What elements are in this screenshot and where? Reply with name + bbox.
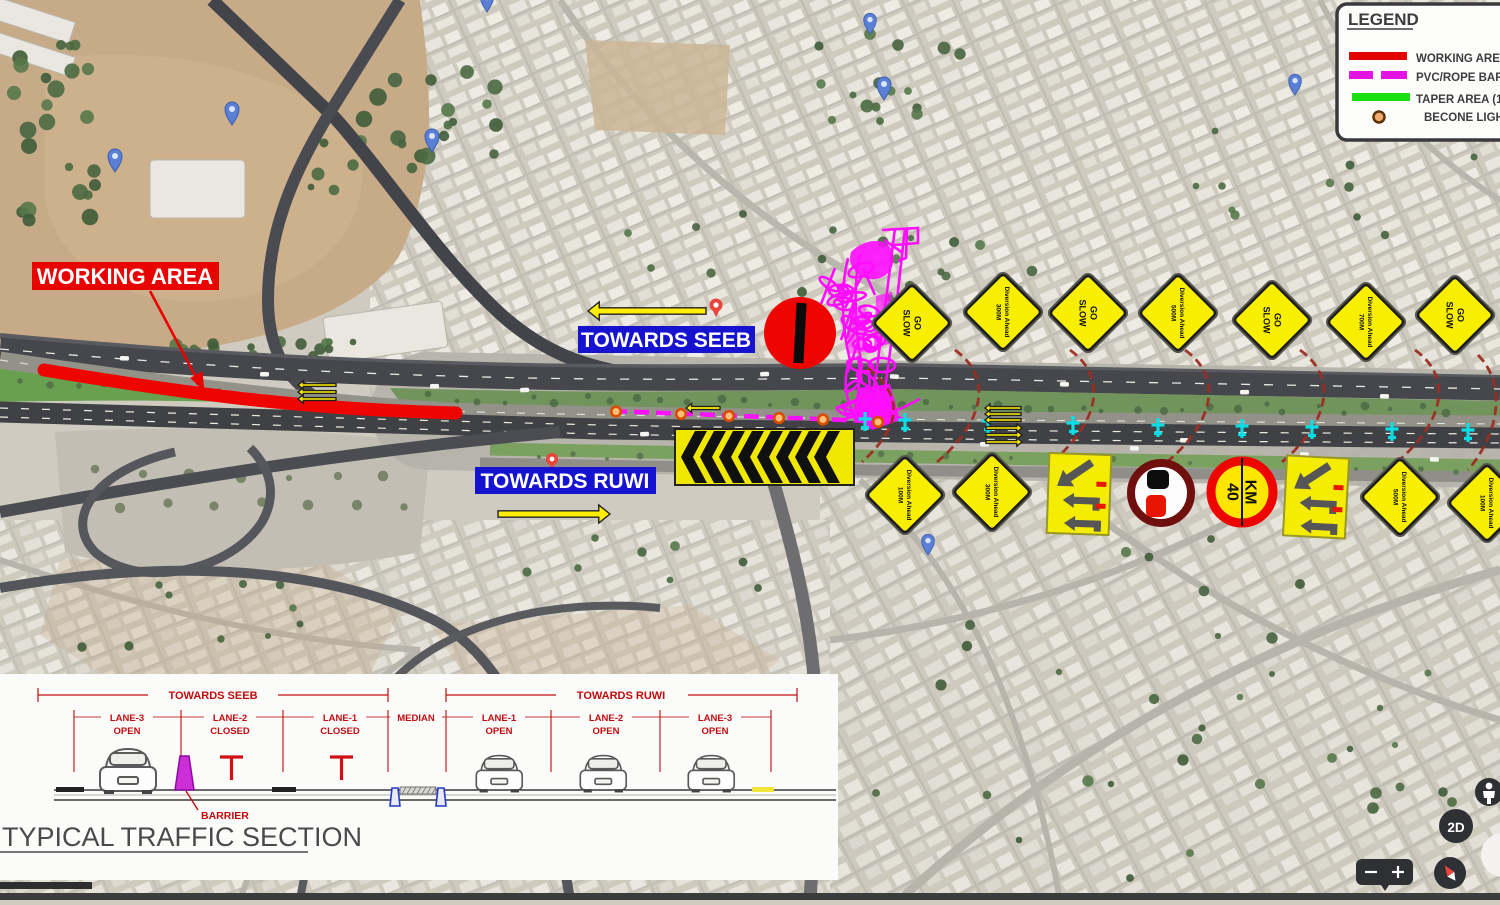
svg-text:WORKING AREA: WORKING AREA — [1416, 53, 1500, 65]
svg-text:Diversion Ahead: Diversion Ahead — [1003, 286, 1010, 337]
svg-text:Diversion Ahead: Diversion Ahead — [1178, 287, 1185, 338]
svg-text:Diversion Ahead: Diversion Ahead — [905, 469, 912, 520]
svg-text:2D: 2D — [1447, 820, 1465, 835]
svg-text:GO: GO — [1088, 306, 1098, 320]
svg-text:TYPICAL TRAFFIC SECTION: TYPICAL TRAFFIC SECTION — [2, 822, 362, 852]
svg-text:LANE-2: LANE-2 — [589, 713, 623, 724]
svg-text:CLOSED: CLOSED — [320, 726, 360, 737]
svg-text:GO: GO — [1272, 313, 1282, 327]
svg-text:500M: 500M — [1392, 489, 1399, 505]
svg-text:GO: GO — [912, 316, 922, 330]
svg-text:TOWARDS RUWI: TOWARDS RUWI — [481, 470, 650, 493]
svg-text:Diversion Ahead: Diversion Ahead — [992, 466, 999, 517]
svg-text:500M: 500M — [1170, 305, 1177, 321]
svg-text:GO: GO — [1455, 308, 1465, 322]
svg-text:CLOSED: CLOSED — [210, 726, 250, 737]
svg-text:SLOW: SLOW — [1077, 300, 1087, 328]
svg-text:100M: 100M — [1479, 495, 1486, 511]
svg-text:BECONE LIGHT: BECONE LIGHT — [1424, 112, 1500, 124]
svg-text:OPEN: OPEN — [593, 726, 620, 737]
svg-text:SLOW: SLOW — [901, 310, 911, 338]
svg-text:LANE-1: LANE-1 — [482, 713, 517, 724]
svg-text:OPEN: OPEN — [702, 726, 729, 737]
svg-text:700M: 700M — [1358, 314, 1365, 330]
svg-text:OPEN: OPEN — [114, 726, 141, 737]
svg-text:MEDIAN: MEDIAN — [397, 713, 435, 724]
svg-text:KM: KM — [1242, 480, 1259, 505]
svg-text:Diversion Ahead: Diversion Ahead — [1366, 296, 1373, 347]
svg-text:TAPER AREA (10: TAPER AREA (10 — [1416, 94, 1500, 106]
svg-text:100M: 100M — [897, 487, 904, 503]
svg-text:BARRIER: BARRIER — [201, 810, 249, 822]
svg-text:LANE-3: LANE-3 — [698, 713, 732, 724]
svg-text:SLOW: SLOW — [1261, 307, 1271, 335]
svg-text:PVC/ROPE BARRIER: PVC/ROPE BARRIER — [1416, 72, 1500, 84]
svg-text:LEGEND: LEGEND — [1348, 10, 1419, 29]
svg-text:40: 40 — [1224, 483, 1241, 501]
svg-text:OPEN: OPEN — [486, 726, 513, 737]
svg-text:TOWARDS RUWI: TOWARDS RUWI — [577, 690, 665, 702]
svg-text:SLOW: SLOW — [1444, 302, 1454, 330]
svg-text:LANE-1: LANE-1 — [323, 713, 358, 724]
svg-text:TOWARDS SEEB: TOWARDS SEEB — [168, 690, 257, 702]
svg-text:LANE-2: LANE-2 — [213, 713, 247, 724]
svg-text:WORKING AREA: WORKING AREA — [37, 264, 214, 289]
svg-text:300M: 300M — [995, 304, 1002, 320]
svg-text:300M: 300M — [984, 484, 991, 500]
svg-text:Diversion Ahead: Diversion Ahead — [1400, 471, 1407, 522]
svg-text:LANE-3: LANE-3 — [110, 713, 144, 724]
svg-text:Diversion Ahead: Diversion Ahead — [1487, 477, 1494, 528]
svg-text:TOWARDS SEEB: TOWARDS SEEB — [581, 329, 751, 352]
